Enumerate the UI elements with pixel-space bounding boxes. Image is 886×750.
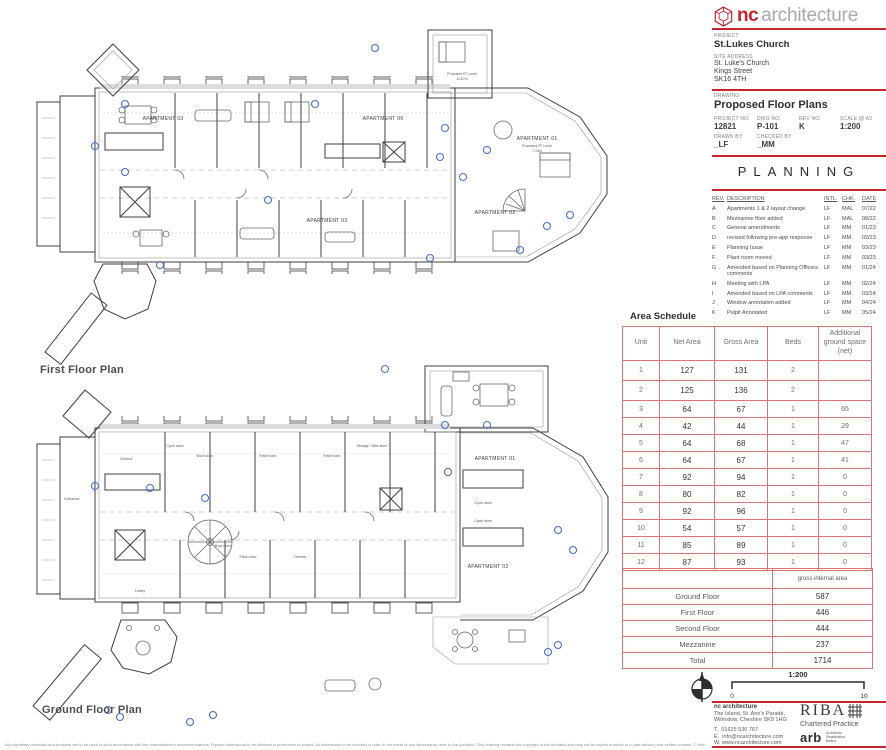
rev-desc: Apartments 1 & 2 layout change xyxy=(727,206,824,212)
rev-date: 03/24 xyxy=(862,291,886,297)
summary-value: 444 xyxy=(773,621,873,637)
room-label: Cycle store xyxy=(474,519,492,523)
cell-beds: 1 xyxy=(768,435,819,452)
partitions xyxy=(100,432,455,598)
cell-gross: 67 xyxy=(715,401,768,418)
drawing-sheet: APARTMENT 03 APARTMENT 06 APARTMENT 01 P… xyxy=(0,0,886,750)
rev-date: 01/23 xyxy=(862,225,886,231)
rev-desc: General amendments xyxy=(727,225,824,231)
apartment-label: APARTMENT 01 xyxy=(517,136,558,142)
rev-chk: MM xyxy=(842,310,862,316)
apartment-label: APARTMENT 03 xyxy=(307,218,348,224)
rev-intl: LF xyxy=(824,245,842,251)
area-schedule-table: Unit Net Area Gross Area Beds Additional… xyxy=(622,326,872,571)
arb-subtitle: Architects Registration Board xyxy=(826,731,845,743)
cell-gross: 44 xyxy=(715,418,768,435)
rev-intl: LF xyxy=(824,265,842,278)
divider xyxy=(712,89,886,91)
ff-level-label: Proposed FF Level xyxy=(522,144,552,148)
rev-intl: LF xyxy=(824,235,842,241)
rev-chk: MM xyxy=(842,255,862,261)
rev-id: D xyxy=(712,235,727,241)
rev-date: 03/23 xyxy=(862,245,886,251)
room-label: Boot room xyxy=(197,454,213,458)
col-header: Additional ground space (net) xyxy=(819,327,872,361)
summary-label: Mezzanine xyxy=(623,637,773,653)
nc-hexagon-icon xyxy=(713,6,734,27)
room-label: Entrance xyxy=(64,497,79,501)
firm-name: nc architecture xyxy=(714,704,757,710)
summary-label: First Floor xyxy=(623,605,773,621)
rev-date: 03/23 xyxy=(862,255,886,261)
room-label: Storage / Bike store xyxy=(357,444,388,448)
col-header: Unit xyxy=(623,327,660,361)
cell-add: 0 xyxy=(819,503,872,520)
table-row: 7929410 xyxy=(623,469,872,486)
summary-value: 1714 xyxy=(773,653,873,669)
cell-net: 64 xyxy=(660,435,715,452)
revision-table: REV. DESCRIPTION INTL. CHK. DATE AApartm… xyxy=(712,196,886,317)
riba-subtitle: Chartered Practice xyxy=(800,721,858,728)
rev-date: 07/22 xyxy=(862,206,886,212)
cell-unit: 8 xyxy=(623,486,660,503)
email-address[interactable]: info@ncarchitecture.com xyxy=(722,734,783,740)
cell-beds: 1 xyxy=(768,537,819,554)
apartment-label: APARTMENT 03 xyxy=(143,116,184,122)
rev-intl: LF xyxy=(824,291,842,297)
phone-label: T. xyxy=(714,727,718,733)
cell-add xyxy=(819,381,872,401)
cell-add: 0 xyxy=(819,469,872,486)
first-floor-plan-drawing: APARTMENT 03 APARTMENT 06 APARTMENT 01 P… xyxy=(25,18,615,373)
table-row: First Floor446 xyxy=(623,605,873,621)
cell-net: 42 xyxy=(660,418,715,435)
rev-header: DATE xyxy=(862,196,886,202)
cell-gross: 82 xyxy=(715,486,768,503)
ff-level-value: 7.16m xyxy=(532,149,542,153)
cell-net: 80 xyxy=(660,486,715,503)
rev-id: J xyxy=(712,300,727,306)
rev-desc: Amended based on LPA comments xyxy=(727,291,824,297)
table-row: Ground Floor587 xyxy=(623,589,873,605)
rev-desc: Pulpit Annotated xyxy=(727,310,824,316)
cell-unit: 10 xyxy=(623,520,660,537)
rev-intl: LF xyxy=(824,310,842,316)
site-address-line: St. Luke's Church xyxy=(714,60,769,68)
logo-nc-text: nc xyxy=(737,5,758,27)
email-label: E. xyxy=(714,734,719,740)
table-row: 36467165 xyxy=(623,401,872,418)
summary-value: 446 xyxy=(773,605,873,621)
cell-add: 29 xyxy=(819,418,872,435)
rev-chk: MM xyxy=(842,281,862,287)
table-row: 11858910 xyxy=(623,537,872,554)
cell-add: 47 xyxy=(819,435,872,452)
rev-id: A xyxy=(712,206,727,212)
rev-header: DESCRIPTION xyxy=(727,196,824,202)
rev-intl: LF xyxy=(824,206,842,212)
rev-chk: MAL xyxy=(842,216,862,222)
room-label: Cinema xyxy=(294,555,306,559)
nave-outline xyxy=(95,84,455,262)
checked-by: _MM xyxy=(757,140,775,149)
rev-date: 04/24 xyxy=(862,300,886,306)
cell-unit: 4 xyxy=(623,418,660,435)
table-row: 66467141 xyxy=(623,452,872,469)
divider xyxy=(712,28,886,30)
rev-id: E xyxy=(712,245,727,251)
ff-level-label: Proposed FF Level xyxy=(447,72,477,76)
ff-level-value: 11.57m xyxy=(456,77,467,81)
site-address-line: SK16 4TH xyxy=(714,76,769,84)
cell-net: 64 xyxy=(660,401,715,418)
rev-intl: LF xyxy=(824,300,842,306)
rev-desc: Amended based on Planning Officers comme… xyxy=(727,265,824,278)
project-name: St.Lukes Church xyxy=(714,39,790,50)
summary-label: Ground Floor xyxy=(623,589,773,605)
rev-id: H xyxy=(712,281,727,287)
ground-floor-plan-drawing: Entrance Lobby Cinema Cycle store Boot r… xyxy=(25,362,615,730)
cell-unit: 9 xyxy=(623,503,660,520)
logo: nc architecture xyxy=(713,5,858,27)
scale-end: 10 xyxy=(860,693,868,699)
floor-summary-table: gross internal area Ground Floor587 Firs… xyxy=(622,568,873,669)
rev-chk: MM xyxy=(842,291,862,297)
rev-no: K xyxy=(799,122,805,131)
divider xyxy=(712,189,886,191)
col-header: Net Area xyxy=(660,327,715,361)
dwg-no: P-101 xyxy=(757,122,778,131)
terrace xyxy=(325,617,548,691)
rev-chk: MM xyxy=(842,265,862,278)
rev-id: F xyxy=(712,255,727,261)
rev-desc: Window annotation added xyxy=(727,300,824,306)
cell-beds: 1 xyxy=(768,520,819,537)
cell-add: 0 xyxy=(819,486,872,503)
rev-desc: Meeting with LPA xyxy=(727,281,824,287)
rev-desc: revised following pre-app response xyxy=(727,235,824,241)
table-row: 56468147 xyxy=(623,435,872,452)
west-end xyxy=(33,390,177,720)
rev-chk: MAL xyxy=(842,206,862,212)
cell-gross: 57 xyxy=(715,520,768,537)
contact-block: T. 01625 536 767 E. info@ncarchitecture.… xyxy=(714,727,783,747)
rev-date: 02/23 xyxy=(862,235,886,241)
cell-beds: 1 xyxy=(768,452,819,469)
room-label: Cycle store xyxy=(474,501,492,505)
riba-portcullis-icon xyxy=(848,703,862,719)
col-header: Beds xyxy=(768,327,819,361)
cell-net: 92 xyxy=(660,469,715,486)
status-planning: PLANNING xyxy=(712,164,886,179)
cell-beds: 1 xyxy=(768,469,819,486)
table-row: 9929610 xyxy=(623,503,872,520)
summary-value: 587 xyxy=(773,589,873,605)
rev-chk: MM xyxy=(842,235,862,241)
cell-gross: 136 xyxy=(715,381,768,401)
drawing-title: Proposed Floor Plans xyxy=(714,99,828,111)
rev-id: C xyxy=(712,225,727,231)
table-row: Mezzanine237 xyxy=(623,637,873,653)
room-label: Cycle store xyxy=(166,444,184,448)
rev-date: 02/24 xyxy=(862,281,886,287)
rev-intl: LF xyxy=(824,225,842,231)
area-schedule-title: Area Schedule xyxy=(630,311,696,322)
cell-unit: 2 xyxy=(623,381,660,401)
rev-id: B xyxy=(712,216,727,222)
rev-header: REV. xyxy=(712,196,727,202)
cell-net: 125 xyxy=(660,381,715,401)
divider xyxy=(712,155,886,157)
rev-desc: Planning Issue xyxy=(727,245,824,251)
table-row: Total1714 xyxy=(623,653,873,669)
scale-bar: 1:200 0 10 xyxy=(724,669,872,699)
cell-unit: 7 xyxy=(623,469,660,486)
buttresses-bottom xyxy=(100,602,450,614)
rev-intl: LF xyxy=(824,281,842,287)
rev-intl: LF xyxy=(824,216,842,222)
scale-start: 0 xyxy=(730,693,734,699)
logo-architecture-text: architecture xyxy=(761,5,858,27)
rev-id: G xyxy=(712,265,727,278)
apartment-label: APARTMENT 02 xyxy=(475,210,516,216)
table-row: 44244129 xyxy=(623,418,872,435)
riba-text: RIBA xyxy=(800,702,846,720)
project-no: 12821 xyxy=(714,122,736,131)
rev-date: 08/22 xyxy=(862,216,886,222)
ground-floor-plan-title: Ground Floor Plan xyxy=(42,704,142,716)
cell-gross: 131 xyxy=(715,361,768,381)
apartment-label: APARTMENT 01 xyxy=(475,456,516,462)
table-row: Second Floor444 xyxy=(623,621,873,637)
room-label: Plant room xyxy=(240,555,257,559)
rev-header: INTL. xyxy=(824,196,842,202)
apartment-label: APARTMENT 06 xyxy=(363,116,404,122)
cell-add: 0 xyxy=(819,537,872,554)
cell-net: 54 xyxy=(660,520,715,537)
cell-gross: 96 xyxy=(715,503,768,520)
stair-core xyxy=(105,133,525,217)
arb-subtitle-line: Board xyxy=(826,739,845,743)
drawn-by: _LF xyxy=(714,140,728,149)
cell-add: 65 xyxy=(819,401,872,418)
apse xyxy=(455,88,607,262)
rev-id: K xyxy=(712,310,727,316)
divider xyxy=(712,746,886,748)
scale-value: 1:200 xyxy=(840,122,860,131)
cell-net: 127 xyxy=(660,361,715,381)
blank-cell xyxy=(623,569,773,589)
riba-logo: RIBA xyxy=(800,702,862,720)
arb-logo: arb xyxy=(800,730,822,745)
cell-net: 64 xyxy=(660,452,715,469)
room-label: Cinema xyxy=(120,457,132,461)
cell-add xyxy=(819,361,872,381)
summary-value: 237 xyxy=(773,637,873,653)
rev-chk: MM xyxy=(842,225,862,231)
rev-chk: MM xyxy=(842,300,862,306)
disclaimer-text: All proprietary materials and products a… xyxy=(5,742,705,747)
cell-gross: 89 xyxy=(715,537,768,554)
cell-beds: 1 xyxy=(768,503,819,520)
cell-unit: 3 xyxy=(623,401,660,418)
room-label: Plant room xyxy=(324,454,341,458)
summary-header: gross internal area xyxy=(773,569,873,589)
cell-beds: 2 xyxy=(768,381,819,401)
table-row: 8808210 xyxy=(623,486,872,503)
cell-unit: 6 xyxy=(623,452,660,469)
room-label: Boot room xyxy=(215,544,231,548)
scale-ratio: 1:200 xyxy=(788,670,807,679)
rev-desc: Mezzanine floor added xyxy=(727,216,824,222)
cell-unit: 11 xyxy=(623,537,660,554)
address-line: Wilmslow, Cheshire SK9 1HG xyxy=(714,717,787,724)
cell-net: 92 xyxy=(660,503,715,520)
cell-gross: 94 xyxy=(715,469,768,486)
cell-beds: 1 xyxy=(768,418,819,435)
cell-gross: 68 xyxy=(715,435,768,452)
cell-unit: 1 xyxy=(623,361,660,381)
site-address-line: Kings Street xyxy=(714,68,769,76)
summary-label: Second Floor xyxy=(623,621,773,637)
firm-address: nc architecture The Island, St. Ann's Pa… xyxy=(714,704,787,724)
cell-beds: 2 xyxy=(768,361,819,381)
phone-number: 01625 536 767 xyxy=(721,727,758,733)
rev-id: I xyxy=(712,291,727,297)
summary-label: Total xyxy=(623,653,773,669)
furniture xyxy=(119,102,570,251)
rev-intl: LF xyxy=(824,255,842,261)
rev-date: 05/24 xyxy=(862,310,886,316)
apartment-label: APARTMENT 02 xyxy=(468,564,509,570)
table-row: 11271312 xyxy=(623,361,872,381)
cell-add: 0 xyxy=(819,520,872,537)
north-arrow-icon xyxy=(686,671,718,703)
cell-add: 41 xyxy=(819,452,872,469)
col-header: Gross Area xyxy=(715,327,768,361)
cell-unit: 5 xyxy=(623,435,660,452)
table-row: 10545710 xyxy=(623,520,872,537)
cell-gross: 67 xyxy=(715,452,768,469)
cell-beds: 1 xyxy=(768,486,819,503)
cell-beds: 1 xyxy=(768,401,819,418)
room-label: Plant room xyxy=(260,454,277,458)
room-label: Lobby xyxy=(135,589,145,593)
rev-date: 01/24 xyxy=(862,265,886,278)
rev-desc: Plant room moved xyxy=(727,255,824,261)
site-address: St. Luke's Church Kings Street SK16 4TH xyxy=(714,60,769,84)
rev-chk: MM xyxy=(842,245,862,251)
table-row: 21251362 xyxy=(623,381,872,401)
rev-header: CHK. xyxy=(842,196,862,202)
cell-net: 85 xyxy=(660,537,715,554)
